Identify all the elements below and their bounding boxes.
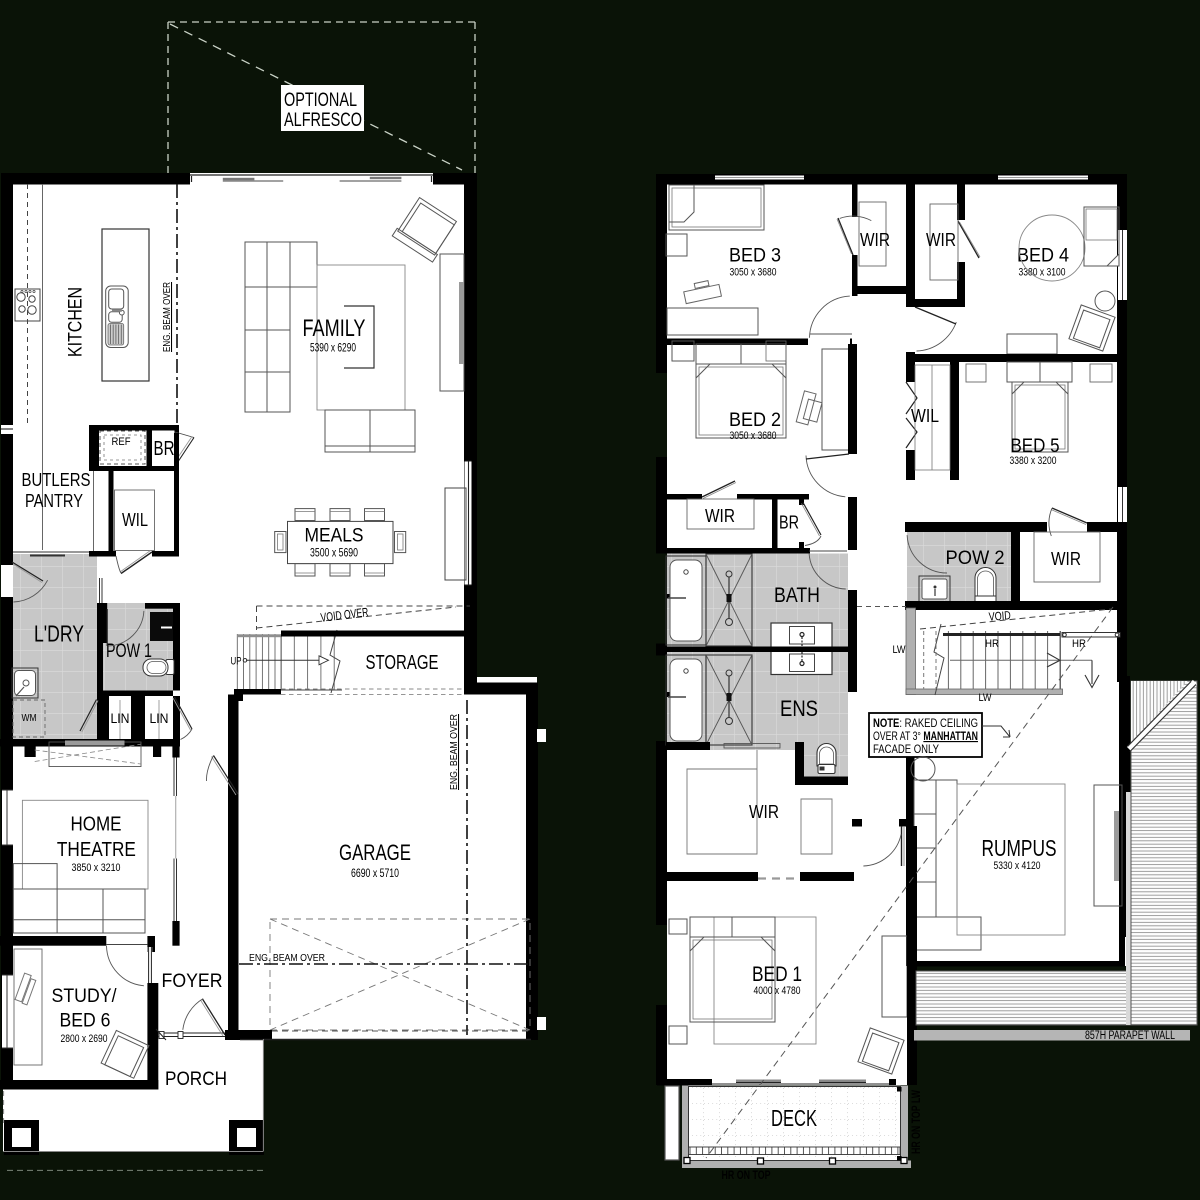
svg-text:3050 x 3680: 3050 x 3680 xyxy=(730,430,777,442)
svg-text:HR: HR xyxy=(985,638,999,650)
svg-text:PANTRY: PANTRY xyxy=(25,491,83,511)
svg-text:HR ON TOP: HR ON TOP xyxy=(722,1170,771,1182)
svg-text:HR ON TOP LW: HR ON TOP LW xyxy=(911,1090,923,1154)
svg-text:POW 2: POW 2 xyxy=(946,548,1005,569)
svg-text:3850 x 3210: 3850 x 3210 xyxy=(72,862,121,874)
svg-text:BED 6: BED 6 xyxy=(60,1010,111,1032)
svg-text:WIR: WIR xyxy=(926,230,956,250)
svg-text:ENS: ENS xyxy=(780,696,818,721)
svg-text:WIR: WIR xyxy=(749,802,779,822)
svg-text:L'DRY: L'DRY xyxy=(34,621,84,647)
svg-text:3380 x 3200: 3380 x 3200 xyxy=(1010,455,1057,467)
svg-text:NOTE: RAKED CEILING: NOTE: RAKED CEILING xyxy=(873,718,978,730)
svg-text:BED 4: BED 4 xyxy=(1017,245,1069,267)
svg-text:KITCHEN: KITCHEN xyxy=(65,287,87,357)
svg-text:MEALS: MEALS xyxy=(305,525,364,547)
svg-text:FAMILY: FAMILY xyxy=(303,315,366,342)
svg-text:BATH: BATH xyxy=(774,583,820,607)
svg-text:POW 1: POW 1 xyxy=(106,641,152,662)
svg-text:6690 x 5710: 6690 x 5710 xyxy=(351,868,399,880)
svg-text:BED 5: BED 5 xyxy=(1011,435,1060,457)
svg-text:857H PARAPET WALL: 857H PARAPET WALL xyxy=(1085,1030,1175,1042)
svg-text:BED 2: BED 2 xyxy=(729,409,781,431)
svg-text:RUMPUS: RUMPUS xyxy=(982,835,1057,861)
svg-text:BR: BR xyxy=(779,513,799,533)
svg-text:2800 x 2690: 2800 x 2690 xyxy=(61,1033,108,1045)
svg-text:WIL: WIL xyxy=(122,510,148,530)
svg-text:STORAGE: STORAGE xyxy=(366,652,439,674)
svg-text:WM: WM xyxy=(22,713,37,724)
svg-text:4000 x 4780: 4000 x 4780 xyxy=(754,985,801,997)
svg-text:GARAGE: GARAGE xyxy=(339,840,411,865)
svg-text:WIR: WIR xyxy=(1051,549,1081,569)
svg-text:FACADE ONLY: FACADE ONLY xyxy=(873,744,939,756)
svg-text:5390 x 6290: 5390 x 6290 xyxy=(310,343,356,355)
svg-text:LIN: LIN xyxy=(111,711,130,726)
svg-text:UP: UP xyxy=(231,656,242,668)
svg-text:OVER AT 3° MANHATTAN: OVER AT 3° MANHATTAN xyxy=(873,731,978,743)
svg-text:OPTIONAL: OPTIONAL xyxy=(284,89,357,111)
svg-text:THEATRE: THEATRE xyxy=(57,839,136,861)
svg-text:LW: LW xyxy=(979,692,993,704)
svg-text:WIR: WIR xyxy=(705,506,735,526)
svg-text:HOME: HOME xyxy=(71,814,122,836)
svg-text:ENG. BEAM OVER: ENG. BEAM OVER xyxy=(249,952,325,964)
svg-text:ALFRESCO: ALFRESCO xyxy=(284,109,362,131)
svg-text:3500 x 5690: 3500 x 5690 xyxy=(310,548,358,560)
svg-text:3050 x 3680: 3050 x 3680 xyxy=(730,267,777,279)
svg-text:WIR: WIR xyxy=(860,230,890,250)
svg-text:LW: LW xyxy=(893,644,907,656)
svg-text:BED 1: BED 1 xyxy=(752,962,802,986)
svg-text:HR: HR xyxy=(1072,638,1086,650)
svg-text:DECK: DECK xyxy=(771,1105,817,1131)
svg-text:5330 x 4120: 5330 x 4120 xyxy=(994,860,1041,872)
svg-text:BED 3: BED 3 xyxy=(729,245,781,267)
svg-text:FOYER: FOYER xyxy=(162,970,223,992)
svg-text:STUDY/: STUDY/ xyxy=(52,985,118,1007)
svg-text:BUTLERS: BUTLERS xyxy=(22,470,91,490)
svg-text:LIN: LIN xyxy=(150,711,169,726)
svg-text:BR: BR xyxy=(154,438,175,460)
svg-text:WIL: WIL xyxy=(911,406,939,426)
svg-text:ENG. BEAM OVER: ENG. BEAM OVER xyxy=(161,282,173,352)
svg-text:REF: REF xyxy=(112,436,131,448)
svg-text:PORCH: PORCH xyxy=(165,1068,227,1090)
svg-text:ENG. BEAM OVER: ENG. BEAM OVER xyxy=(448,714,460,790)
svg-text:VOID: VOID xyxy=(988,608,1011,624)
